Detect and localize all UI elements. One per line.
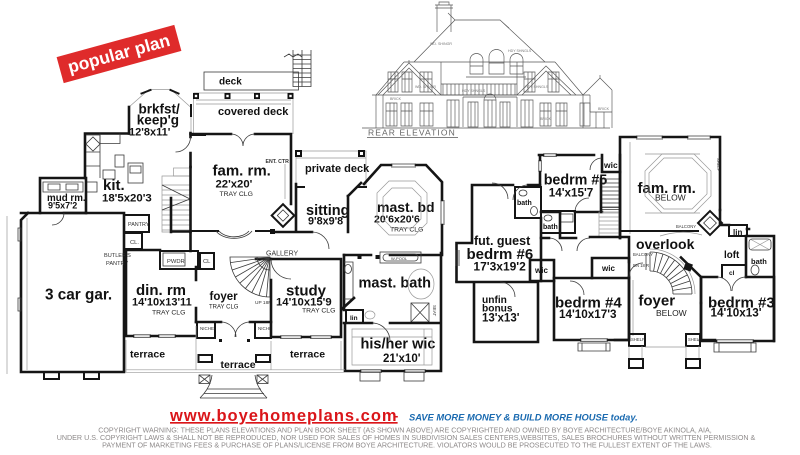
- svg-text:WD. SHINGR: WD. SHINGR: [430, 42, 452, 46]
- svg-text:wic: wic: [534, 266, 548, 275]
- svg-text:HDY SHNGLS: HDY SHNGLS: [462, 89, 486, 93]
- svg-text:GALLERY: GALLERY: [266, 251, 298, 258]
- svg-text:covered deck: covered deck: [218, 106, 289, 118]
- svg-text:SEAT: SEAT: [432, 305, 437, 316]
- svg-text:loft: loft: [724, 250, 740, 261]
- svg-text:14'10x13'11: 14'10x13'11: [132, 297, 192, 309]
- svg-text:overlook: overlook: [636, 236, 695, 252]
- svg-text:REAR ELEVATION: REAR ELEVATION: [368, 128, 456, 138]
- svg-text:-: -: [394, 408, 398, 423]
- svg-text:bath: bath: [517, 200, 532, 207]
- svg-text:21'x10': 21'x10': [383, 353, 421, 365]
- svg-text:www.boyehomeplans.com: www.boyehomeplans.com: [169, 407, 398, 425]
- svg-text:bath: bath: [751, 257, 767, 266]
- svg-text:12'8x11': 12'8x11': [129, 127, 171, 139]
- svg-text:lin: lin: [733, 228, 742, 237]
- svg-text:wic: wic: [601, 264, 615, 273]
- svg-text:SHELF: SHELF: [716, 158, 721, 171]
- svg-text:bath: bath: [543, 224, 558, 231]
- svg-text:BELOW: BELOW: [655, 193, 686, 203]
- svg-text:wic: wic: [603, 160, 618, 170]
- svg-text:NICHE: NICHE: [200, 326, 214, 331]
- svg-text:CL: CL: [203, 259, 211, 265]
- svg-text:private deck: private deck: [305, 163, 370, 175]
- svg-text:20'6x20'6: 20'6x20'6: [374, 214, 420, 226]
- svg-text:WD. SHNGR: WD. SHNGR: [415, 85, 436, 89]
- svg-text:TRAY CLG: TRAY CLG: [152, 310, 185, 317]
- svg-text:9'5x7'2: 9'5x7'2: [48, 201, 77, 211]
- svg-text:cl: cl: [729, 270, 735, 277]
- svg-text:HDY SHNGLS: HDY SHNGLS: [525, 85, 549, 89]
- svg-text:PANTRY: PANTRY: [128, 222, 150, 228]
- svg-text:14'10x17'3: 14'10x17'3: [559, 308, 617, 321]
- svg-text:SHELF: SHELF: [631, 337, 645, 342]
- svg-text:deck: deck: [219, 77, 242, 88]
- svg-text:TRAY CLG: TRAY CLG: [302, 308, 335, 315]
- svg-text:terrace: terrace: [221, 359, 256, 371]
- svg-text:W-POOL: W-POOL: [391, 256, 408, 261]
- svg-text:BRICK: BRICK: [598, 107, 610, 111]
- svg-text:terrace: terrace: [130, 349, 165, 361]
- svg-text:PAYMENT OF MARKETING FEES & PU: PAYMENT OF MARKETING FEES & PURCHASE OF …: [102, 442, 712, 450]
- svg-text:CL.: CL.: [130, 240, 139, 246]
- svg-text:terrace: terrace: [290, 349, 325, 361]
- svg-text:BRICK: BRICK: [540, 117, 552, 121]
- svg-text:HDY SHNGLS: HDY SHNGLS: [508, 49, 532, 53]
- svg-text:TRAY CLG: TRAY CLG: [209, 305, 239, 311]
- svg-text:foyer: foyer: [638, 293, 675, 310]
- svg-text:BRICK: BRICK: [390, 97, 402, 101]
- svg-text:mast. bath: mast. bath: [359, 276, 432, 292]
- svg-text:3 car gar.: 3 car gar.: [45, 287, 112, 304]
- svg-text:keep'g: keep'g: [137, 113, 179, 128]
- svg-text:9'8x9'8: 9'8x9'8: [308, 216, 343, 228]
- svg-text:ENT. CTR: ENT. CTR: [266, 159, 290, 165]
- svg-text:17'3x19'2: 17'3x19'2: [473, 260, 526, 274]
- svg-text:PWDR: PWDR: [167, 259, 185, 265]
- svg-text:BALCONY: BALCONY: [676, 224, 696, 229]
- svg-text:18'5x20'3: 18'5x20'3: [102, 193, 152, 205]
- svg-text:fam. rm.: fam. rm.: [213, 163, 271, 180]
- svg-text:kit.: kit.: [103, 177, 125, 194]
- svg-text:TRAY CLG: TRAY CLG: [220, 191, 253, 198]
- svg-text:TRAY CLG: TRAY CLG: [390, 227, 423, 234]
- svg-text:22'x20': 22'x20': [216, 179, 253, 191]
- svg-text:BELOW: BELOW: [656, 308, 687, 318]
- svg-text:UP 18R: UP 18R: [255, 300, 272, 306]
- svg-text:foyer: foyer: [210, 291, 239, 303]
- svg-text:lin: lin: [350, 315, 358, 322]
- svg-text:13'x13': 13'x13': [482, 313, 520, 325]
- svg-text:SAVE MORE MONEY & BUILD MORE H: SAVE MORE MONEY & BUILD MORE HOUSE today…: [409, 413, 638, 423]
- svg-text:14'x15'7: 14'x15'7: [549, 187, 594, 200]
- svg-text:14'10x13': 14'10x13': [711, 307, 762, 320]
